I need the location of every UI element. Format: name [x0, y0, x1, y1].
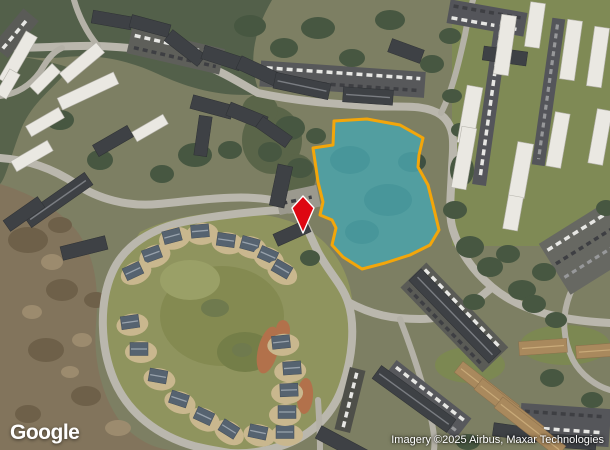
google-logo[interactable]: Google — [10, 421, 79, 445]
imagery-attribution: Imagery ©2025 Airbus, Maxar Technologies — [391, 434, 604, 446]
parcel-layer — [313, 119, 439, 269]
satellite-imagery — [0, 0, 610, 450]
parcel-highlight[interactable] — [313, 119, 439, 269]
map-canvas[interactable]: Google Imagery ©2025 Airbus, Maxar Techn… — [0, 0, 610, 450]
